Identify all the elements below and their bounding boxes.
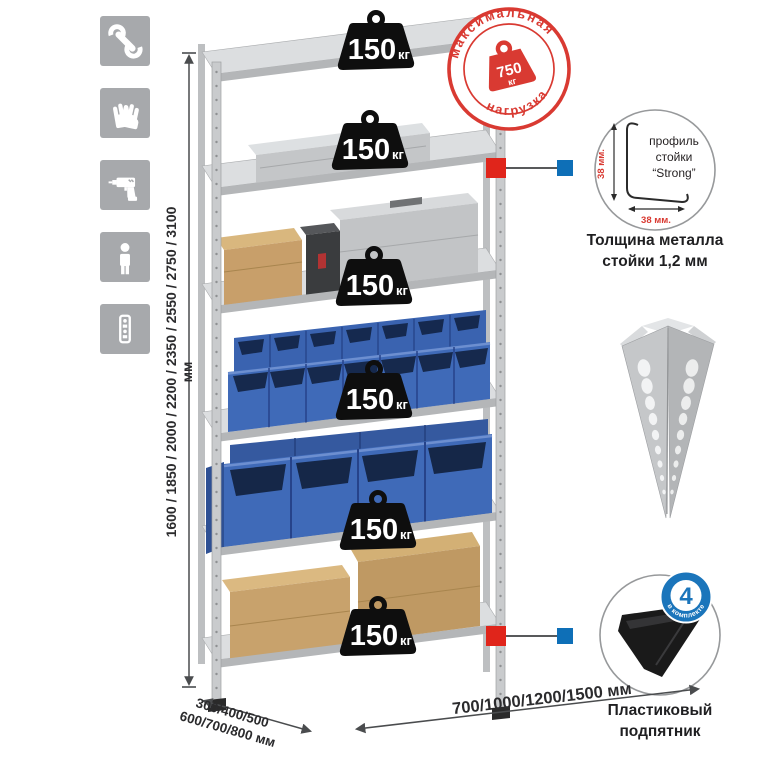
svg-text:стойки: стойки — [656, 150, 693, 164]
callout-line-top — [504, 167, 558, 169]
feature-tile-drill — [100, 160, 150, 210]
load-badge-1: 150 кг — [320, 10, 432, 74]
load-badge-6: 150 кг — [322, 596, 434, 660]
max-load-stamp: максимальная нагрузка 750 кг — [444, 4, 574, 134]
callout-marker-blue-top — [557, 160, 573, 176]
svg-text:150: 150 — [348, 34, 396, 66]
svg-text:профиль: профиль — [649, 134, 699, 148]
height-dimension-label: 1600 / 1850 / 2000 / 2200 / 2350 / 2550 … — [163, 202, 181, 542]
svg-text:150: 150 — [346, 270, 394, 302]
profile-detail-circle: 38 мм. 38 мм. профиль стойки “Strong” — [593, 108, 717, 232]
callout-marker-blue-bottom — [557, 628, 573, 644]
svg-text:38 мм.: 38 мм. — [596, 149, 607, 179]
infographic-canvas: 1600 / 1850 / 2000 / 2200 / 2350 / 2550 … — [0, 0, 765, 765]
svg-text:150: 150 — [342, 134, 390, 166]
feature-tile-person — [100, 232, 150, 282]
callout-marker-red-top — [486, 158, 506, 178]
svg-text:38 мм.: 38 мм. — [641, 215, 671, 226]
person-icon — [107, 239, 143, 275]
svg-text:кг: кг — [400, 527, 413, 542]
feature-tile-assembly — [100, 16, 150, 66]
load-badge-2: 150 кг — [314, 110, 426, 174]
svg-text:“Strong”: “Strong” — [652, 166, 695, 180]
svg-text:кг: кг — [392, 147, 405, 162]
load-badge-3: 150 кг — [318, 246, 430, 310]
svg-text:кг: кг — [398, 47, 411, 62]
kit-quantity-badge: 4 в комплекте — [658, 569, 714, 625]
feature-tile-rack-post — [100, 304, 150, 354]
svg-text:4: 4 — [679, 583, 693, 610]
svg-text:150: 150 — [350, 514, 398, 546]
gloves-icon — [107, 95, 143, 131]
load-badge-4: 150 кг — [318, 360, 430, 424]
feature-tile-gloves — [100, 88, 150, 138]
drill-icon — [107, 167, 143, 203]
profile-caption: Толщина металла стойки 1,2 мм — [560, 230, 750, 272]
callout-line-bottom — [504, 635, 558, 637]
rack-post-icon — [107, 311, 143, 347]
callout-marker-red-bottom — [486, 626, 506, 646]
svg-text:кг: кг — [396, 397, 409, 412]
wrench-icon — [107, 23, 143, 59]
angle-post-image — [596, 306, 740, 528]
load-badge-5: 150 кг — [322, 490, 434, 554]
svg-text:кг: кг — [396, 283, 409, 298]
svg-text:кг: кг — [400, 633, 413, 648]
svg-text:150: 150 — [350, 620, 398, 652]
svg-text:150: 150 — [346, 384, 394, 416]
